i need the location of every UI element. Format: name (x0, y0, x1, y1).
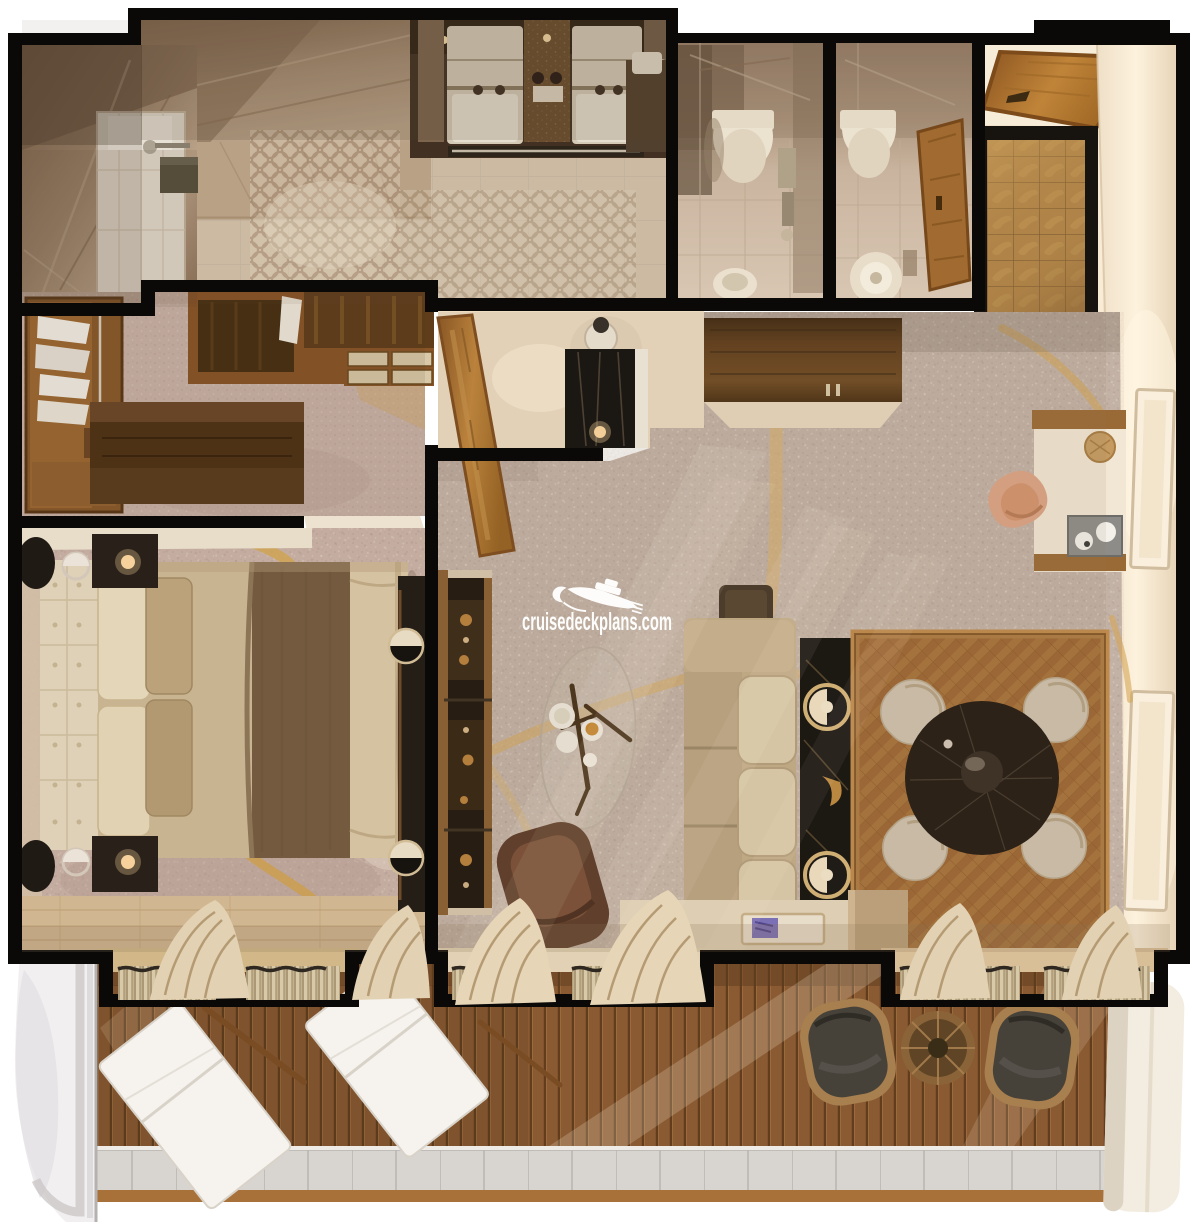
svg-text:cruisedeckplans.com: cruisedeckplans.com (522, 608, 672, 636)
